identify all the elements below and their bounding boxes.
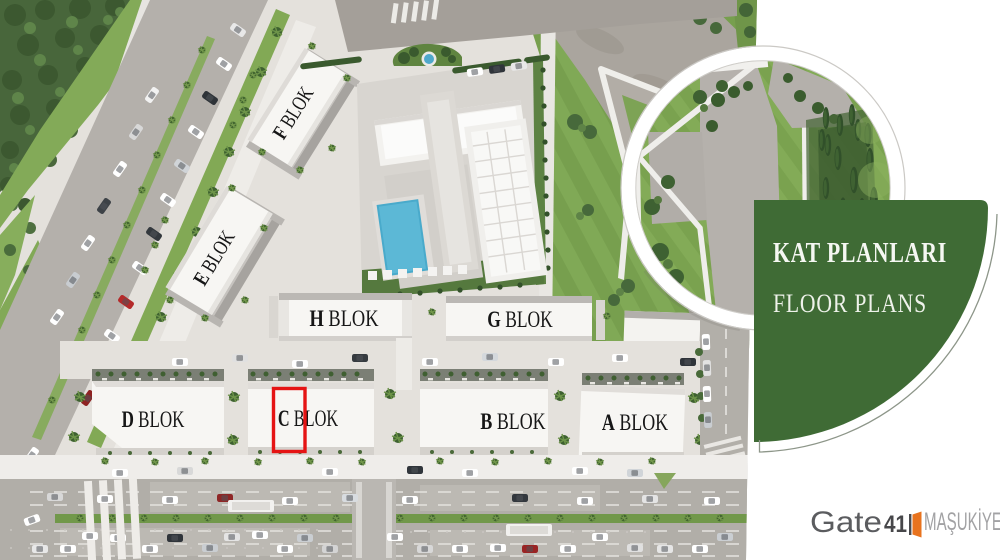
svg-text:FLOOR PLANS: FLOOR PLANS bbox=[773, 289, 927, 318]
svg-text:A BLOK: A BLOK bbox=[602, 411, 668, 436]
svg-text:B BLOK: B BLOK bbox=[480, 410, 545, 435]
svg-text:41: 41 bbox=[884, 511, 907, 538]
svg-text:G BLOK: G BLOK bbox=[487, 308, 553, 333]
svg-text:D BLOK: D BLOK bbox=[122, 408, 185, 433]
svg-text:C BLOK: C BLOK bbox=[278, 406, 339, 431]
svg-text:H BLOK: H BLOK bbox=[310, 305, 379, 332]
svg-text:KAT PLANLARI: KAT PLANLARI bbox=[773, 238, 947, 269]
svg-text:Gate: Gate bbox=[810, 506, 882, 539]
svg-text:MAŞUKİYE: MAŞUKİYE bbox=[924, 507, 1000, 536]
